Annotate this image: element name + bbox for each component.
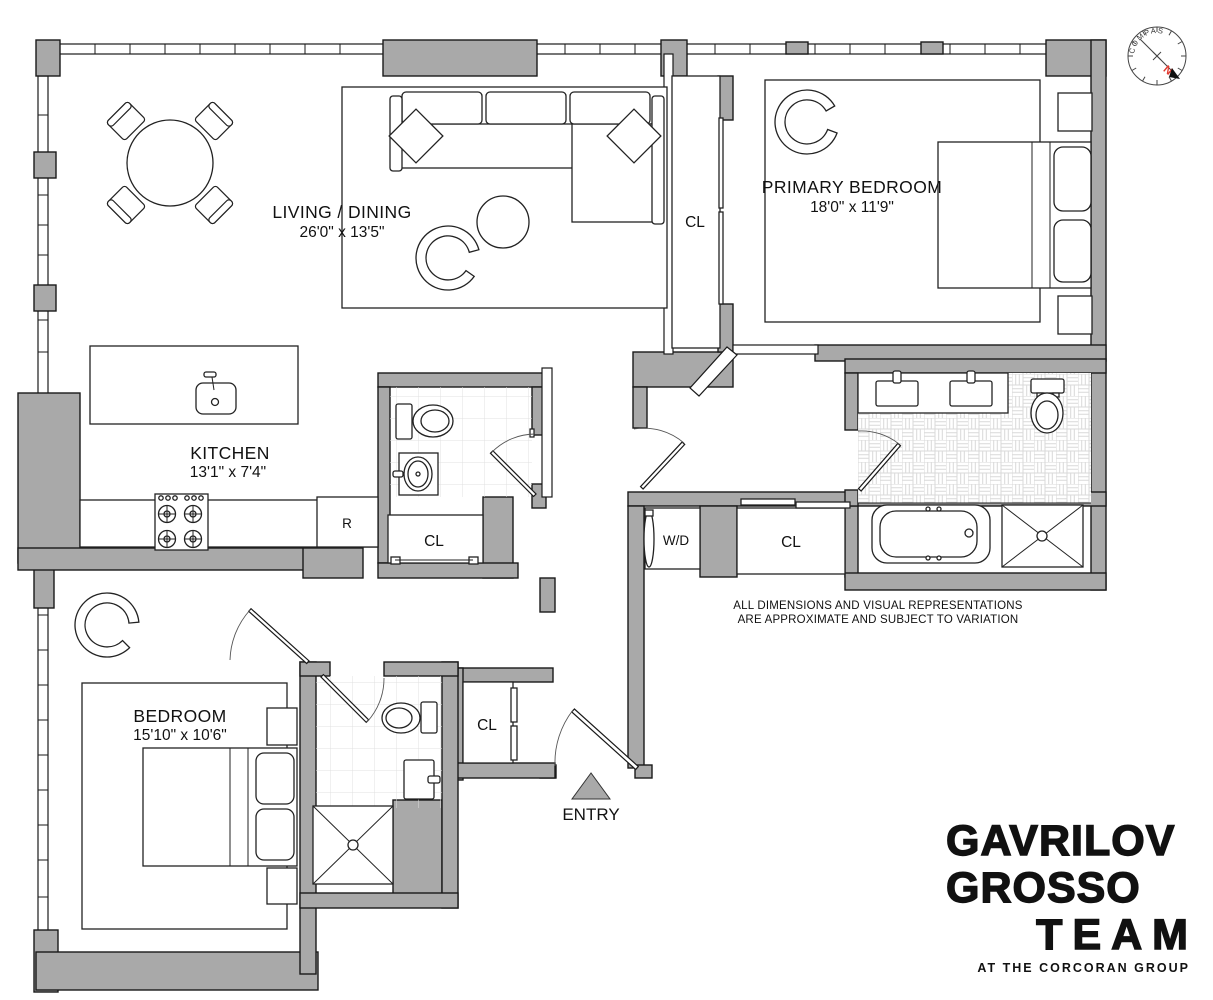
sliding-door	[741, 499, 795, 505]
closet-hall: CL	[737, 499, 850, 574]
kitchen-dims: 13'1" x 7'4"	[190, 464, 266, 481]
refrigerator-label: R	[342, 516, 352, 531]
door-leaf	[249, 609, 309, 664]
nightstand	[267, 708, 297, 745]
hall-door	[634, 428, 685, 489]
washer-dryer-label: W/D	[663, 533, 689, 548]
pillow	[1054, 220, 1091, 282]
door-swing	[555, 710, 573, 766]
living-dining-dims: 26'0" x 13'5"	[299, 224, 384, 241]
entry: ENTRY	[555, 709, 638, 824]
primary-bedroom-dims: 18'0" x 11'9"	[810, 199, 894, 216]
brand-tagline: AT THE CORCORAN GROUP	[977, 961, 1190, 975]
compass: COMPASS N	[0, 0, 1186, 85]
toilet	[1031, 379, 1064, 433]
sliding-door	[511, 726, 517, 760]
floorplan-page: LIVING / DINING 26'0" x 13'5" CL PRIMARY…	[0, 0, 1213, 1000]
shower	[313, 806, 393, 884]
bedroom-2: BEDROOM 15'10" x 10'6"	[70, 588, 309, 929]
drain	[1037, 531, 1047, 541]
bifold-door	[644, 511, 654, 567]
branding: GAVRILOV GROSSO TEAM AT THE CORCORAN GRO…	[946, 817, 1198, 975]
sliding-door	[719, 212, 723, 304]
dining-set	[106, 101, 234, 225]
bathroom-1	[390, 387, 536, 497]
door-leaf	[641, 442, 685, 489]
kitchen: KITCHEN 13'1" x 7'4" R	[80, 346, 378, 550]
closet-tall: CL	[672, 76, 723, 348]
entry-label: ENTRY	[562, 805, 619, 824]
primary-bedroom: PRIMARY BEDROOM 18'0" x 11'9"	[762, 80, 1092, 334]
burner	[185, 506, 202, 523]
bedroom-dims: 15'10" x 10'6"	[133, 727, 227, 744]
closet-label: CL	[685, 214, 705, 231]
nightstand	[267, 868, 297, 904]
nightstand	[1058, 296, 1092, 334]
primary-bathroom	[858, 371, 1091, 567]
closet-label: CL	[477, 717, 497, 734]
toilet	[396, 404, 453, 439]
disclaimer-line1: ALL DIMENSIONS AND VISUAL REPRESENTATION…	[733, 600, 1023, 612]
burner	[185, 531, 202, 548]
disclaimer-line2: ARE APPROXIMATE AND SUBJECT TO VARIATION	[738, 614, 1019, 626]
faucet	[893, 371, 901, 383]
door-swing	[230, 610, 250, 660]
brand-line3: TEAM	[1036, 911, 1198, 959]
living-dining-room: LIVING / DINING 26'0" x 13'5"	[106, 87, 667, 308]
brand-line1: GAVRILOV	[946, 817, 1175, 865]
entry-arrow	[572, 773, 610, 799]
sliding-door	[719, 118, 723, 208]
dining-table	[127, 120, 213, 206]
pillow	[256, 809, 294, 860]
closet-label: CL	[424, 533, 444, 550]
sliding-door	[796, 502, 850, 508]
coffee-table	[477, 196, 529, 248]
living-dining-label: LIVING / DINING	[272, 202, 411, 222]
toilet	[382, 702, 437, 733]
bed-secondary	[143, 748, 297, 866]
bedroom-label: BEDROOM	[133, 706, 226, 726]
faucet	[967, 371, 975, 383]
closet-label: CL	[781, 534, 801, 551]
swivel-chair	[70, 588, 143, 662]
stove	[155, 494, 208, 550]
drain	[348, 840, 358, 850]
burner	[159, 506, 176, 523]
closet-entry: CL	[463, 682, 517, 763]
floorplan-canvas: LIVING / DINING 26'0" x 13'5" CL PRIMARY…	[0, 0, 1213, 1000]
shower	[1002, 505, 1083, 567]
kitchen-island	[90, 346, 298, 424]
bathroom-sink	[404, 760, 440, 799]
laundry-closet: W/D	[644, 508, 700, 569]
burner	[159, 531, 176, 548]
pillow	[1054, 147, 1091, 211]
double-vanity	[858, 371, 1008, 413]
kitchen-label: KITCHEN	[190, 443, 270, 463]
pillow	[256, 753, 294, 804]
brand-line2: GROSSO	[946, 864, 1141, 912]
primary-bedroom-label: PRIMARY BEDROOM	[762, 177, 942, 197]
bathtub	[872, 505, 990, 563]
nightstand	[1058, 93, 1092, 131]
disclaimer: ALL DIMENSIONS AND VISUAL REPRESENTATION…	[733, 600, 1023, 626]
bed-primary	[938, 142, 1091, 288]
sliding-door	[511, 688, 517, 722]
door-swing	[634, 428, 684, 443]
door-jamb	[530, 429, 534, 437]
bathroom-sink	[393, 453, 438, 495]
closet-kitchen: CL	[388, 515, 483, 564]
